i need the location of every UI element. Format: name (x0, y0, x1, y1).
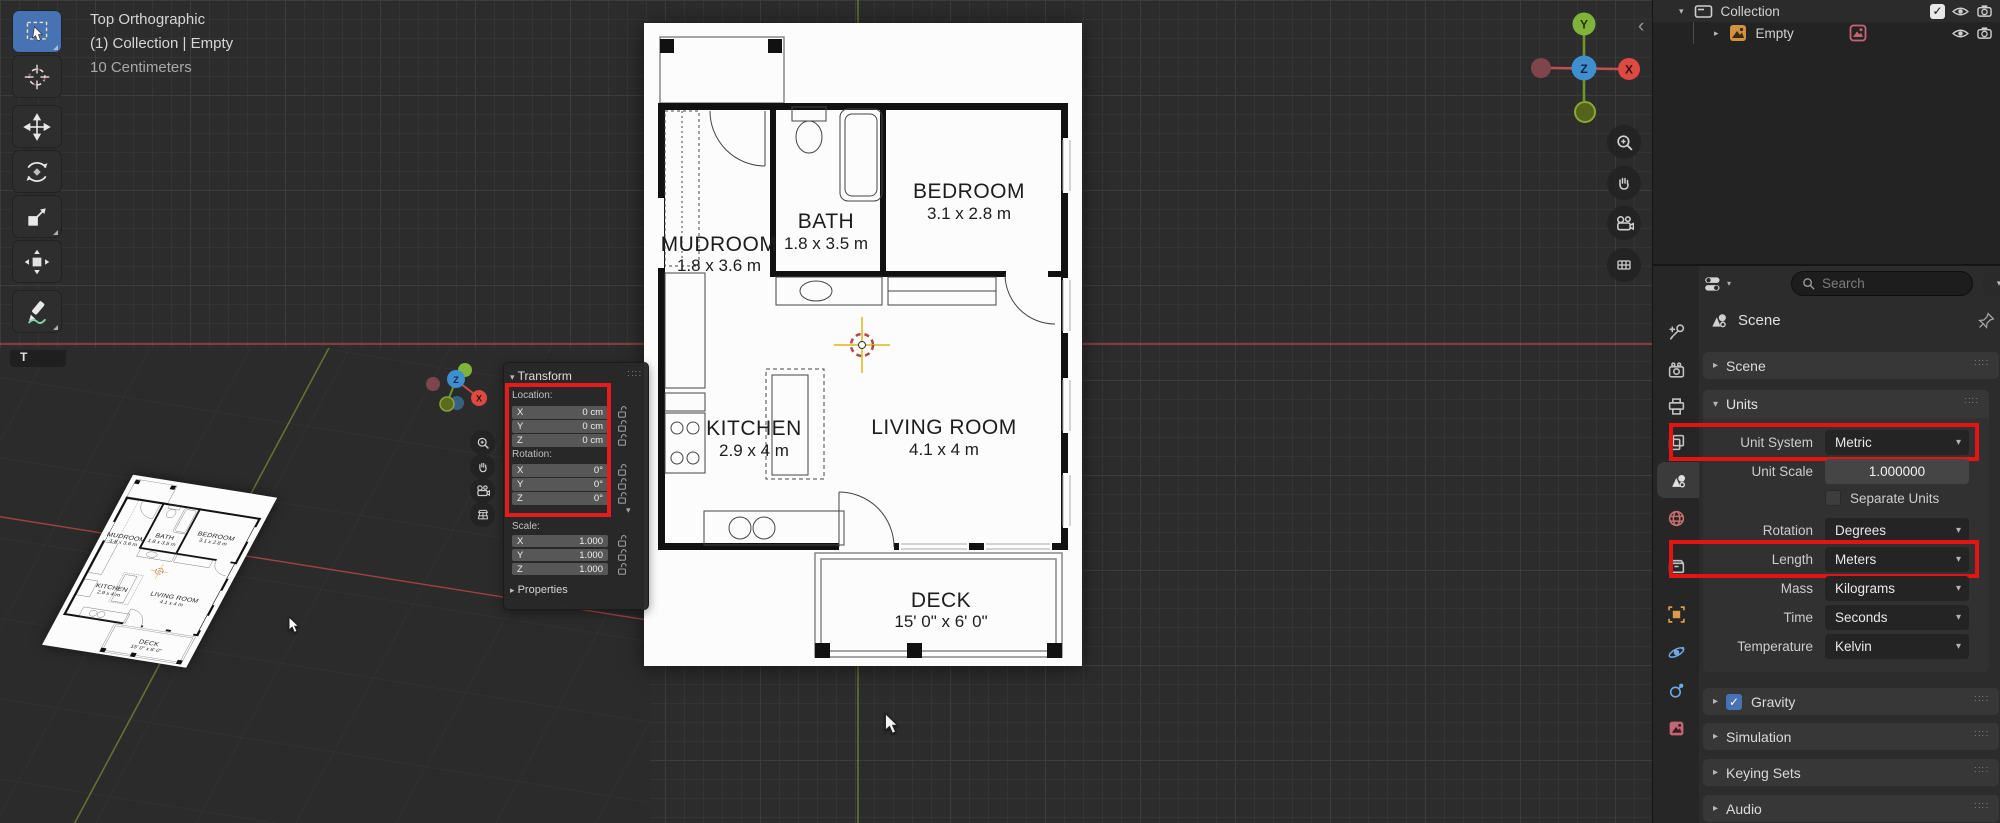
rotation-unit-row: Rotation Degrees▾ (1703, 517, 1983, 543)
panel-drag-dots[interactable]: ∷∷ (1964, 396, 1979, 407)
camera-view-button[interactable] (1607, 206, 1641, 240)
scale-label: Scale: (512, 521, 540, 532)
transform-panel: ▾ Transform ∷∷ Location: X0 cm Y0 cm Z0 … (503, 362, 649, 610)
viewport-3d[interactable]: MUDROOM 1.8 x 3.6 m BATH 1.8 x 3.5 m BED… (0, 0, 1652, 823)
cursor-tool[interactable] (12, 55, 62, 98)
location-label: Location: (512, 390, 553, 401)
panel-keying-sets[interactable]: ▸ Keying Sets ∷∷ (1703, 759, 1999, 786)
floorplan-image-empty[interactable]: MUDROOM 1.8 x 3.6 m BATH 1.8 x 3.5 m BED… (644, 23, 1082, 666)
svg-text:1.8 x 3.5 m: 1.8 x 3.5 m (784, 234, 868, 253)
svg-text:Z: Z (453, 375, 459, 385)
mass-unit-row: Mass Kilograms▾ (1703, 575, 1983, 601)
length-unit-dropdown[interactable]: Meters▾ (1825, 547, 1969, 572)
lock-icon[interactable] (616, 434, 628, 446)
view-name-text: Top Orthographic (90, 8, 233, 32)
scene-icon (1709, 310, 1729, 330)
tab-render[interactable] (1653, 352, 1699, 388)
lock-icon[interactable] (616, 478, 628, 490)
outliner-row-collection[interactable]: ▾ Collection ✓ (1653, 0, 2000, 22)
tab-physics[interactable] (1653, 634, 1699, 670)
svg-text:Y: Y (1580, 18, 1588, 32)
inset-gizmo-neg-x-axis (426, 377, 440, 391)
tab-scene[interactable] (1657, 462, 1699, 498)
3d-cursor (834, 317, 890, 373)
svg-text:4.1 x 4 m: 4.1 x 4 m (909, 440, 979, 459)
inset-pan-button[interactable] (470, 454, 495, 479)
lock-icon[interactable] (616, 492, 628, 504)
sidebar-collapse-chevron[interactable]: ‹ (1638, 16, 1644, 38)
svg-text:3.1 x 2.8 m: 3.1 x 2.8 m (927, 204, 1011, 223)
tab-object-data[interactable] (1653, 710, 1699, 746)
properties-search[interactable]: Search (1791, 271, 1973, 296)
svg-text:1.8 x 3.6 m: 1.8 x 3.6 m (677, 256, 761, 275)
time-unit-dropdown[interactable]: Seconds▾ (1825, 605, 1969, 630)
room-label: BEDROOM (913, 180, 1025, 203)
unit-scale-field[interactable]: 1.000000 (1825, 459, 1969, 484)
mass-unit-dropdown[interactable]: Kilograms▾ (1825, 576, 1969, 601)
breadcrumb-scene[interactable]: Scene (1738, 312, 1781, 329)
properties-content: ▾ Search ▾ Scene ▸ Scene ∷∷ (1699, 266, 2000, 823)
active-object-text: (1) Collection | Empty (90, 32, 233, 56)
room-label: DECK (911, 589, 971, 612)
svg-text:2.9 x 4 m: 2.9 x 4 m (719, 441, 789, 460)
inset-viewport-tab[interactable]: T (10, 350, 66, 367)
scale-x-field[interactable]: X1.000 (512, 535, 608, 547)
move-tool[interactable] (12, 105, 62, 148)
svg-text:Z: Z (1580, 62, 1587, 76)
svg-text:X: X (1625, 63, 1633, 77)
editor-type-button[interactable]: ▾ (1703, 271, 1743, 296)
panel-drag-dots[interactable]: ∷∷ (1974, 694, 1989, 705)
rotation-unit-dropdown[interactable]: Degrees▾ (1825, 518, 1969, 543)
scale-y-field[interactable]: Y1.000 (512, 549, 608, 561)
camera-restrict-icon[interactable] (1976, 4, 1993, 18)
rotation-mode-dropdown[interactable]: ▾ (626, 505, 631, 516)
blender-window: MUDROOM 1.8 x 3.6 m BATH 1.8 x 3.5 m BED… (0, 0, 2000, 823)
lock-icon[interactable] (616, 535, 628, 547)
properties-editor: ▾ Search ▾ Scene ▸ Scene ∷∷ (1653, 266, 2000, 823)
filter-dropdown-button[interactable]: ▾ (1983, 271, 2000, 296)
unit-system-dropdown[interactable]: Metric▾ (1825, 430, 1969, 455)
properties-tab-strip (1653, 266, 1699, 823)
lock-icon[interactable] (616, 464, 628, 476)
lock-icon[interactable] (616, 563, 628, 575)
rotation-z-field[interactable]: Z0° (512, 492, 608, 505)
rotation-x-field[interactable]: X0° (512, 464, 608, 477)
room-label: MUDROOM (661, 233, 778, 256)
search-placeholder: Search (1822, 276, 1865, 291)
lock-icon[interactable] (616, 420, 628, 432)
location-x-field[interactable]: X0 cm (512, 406, 608, 419)
lock-icon[interactable] (616, 549, 628, 561)
collection-icon (1694, 3, 1713, 19)
separate-units-checkbox[interactable] (1825, 490, 1841, 506)
inset-gizmo-neg-y-axis (440, 397, 454, 411)
grid-scale-text: 10 Centimeters (90, 56, 233, 80)
properties-subpanel[interactable]: ▸ Properties (510, 584, 568, 596)
gizmo-neg-x-axis (1531, 58, 1551, 78)
rotation-y-field[interactable]: Y0° (512, 478, 608, 491)
gravity-checkbox[interactable]: ✓ (1726, 694, 1742, 710)
temperature-unit-dropdown[interactable]: Kelvin▾ (1825, 634, 1969, 659)
pan-button[interactable] (1607, 166, 1641, 200)
panel-scene[interactable]: ▸ Scene ∷∷ (1703, 352, 1999, 379)
gizmo-neg-y-axis (1575, 102, 1595, 122)
transform-tool[interactable] (12, 240, 62, 283)
panel-simulation[interactable]: ▸ Simulation ∷∷ (1703, 723, 1999, 750)
outliner-item-label[interactable]: Collection (1721, 4, 1780, 19)
mouse-cursor (884, 712, 901, 737)
transform-panel-header[interactable]: ▾ Transform (510, 369, 572, 383)
outliner-item-label[interactable]: Empty (1756, 26, 1794, 41)
image-data-icon (1848, 23, 1868, 43)
camera-restrict-icon[interactable] (1976, 26, 1993, 40)
temperature-unit-row: Temperature Kelvin▾ (1703, 633, 1983, 659)
svg-text:15' 0" x 6' 0": 15' 0" x 6' 0" (894, 612, 987, 631)
zoom-button[interactable] (1607, 125, 1641, 159)
inset-nav-gizmo[interactable]: Z X (420, 356, 510, 422)
eye-icon[interactable] (1952, 27, 1969, 40)
lock-icon[interactable] (616, 406, 628, 418)
search-icon (1802, 277, 1815, 290)
panel-drag-dots[interactable]: ∷∷ (1974, 801, 1989, 812)
panel-units: ▾ Units ∷∷ Unit System Metric▾ Unit Scal… (1699, 390, 1995, 680)
tab-output[interactable] (1653, 388, 1699, 424)
eye-icon[interactable] (1952, 5, 1969, 18)
tab-object[interactable] (1653, 596, 1699, 632)
tab-view-layer[interactable] (1653, 424, 1699, 460)
panel-audio[interactable]: ▸ Audio ∷∷ (1703, 795, 1999, 822)
svg-text:X: X (476, 394, 482, 404)
panel-drag-dots[interactable]: ∷∷ (1974, 765, 1989, 776)
viewport-header: Top Orthographic (1) Collection | Empty … (90, 8, 233, 80)
unit-system-row: Unit System Metric▾ (1703, 429, 1983, 455)
select-box-tool[interactable] (12, 10, 62, 53)
inset-grid-button[interactable] (470, 502, 495, 527)
tab-tool[interactable] (1653, 314, 1699, 350)
inset-camera-button[interactable] (470, 478, 495, 503)
tree-line (1693, 22, 1694, 44)
room-label: BATH (798, 210, 854, 233)
tab-world[interactable] (1653, 500, 1699, 536)
measure-tool-icon: T (20, 350, 27, 364)
inset-mouse-cursor (288, 616, 301, 635)
right-panel: ▾ Collection ✓ ▸ Empty (1652, 0, 2000, 823)
pin-icon[interactable] (1978, 312, 1995, 329)
empty-image-object-icon (1728, 23, 1748, 43)
panel-drag-dots[interactable]: ∷∷ (1974, 358, 1989, 369)
outliner-row-empty[interactable]: ▸ Empty (1653, 22, 2000, 44)
room-label: LIVING ROOM (871, 416, 1017, 439)
outliner: ▾ Collection ✓ ▸ Empty (1653, 0, 2000, 264)
units-panel-header[interactable]: ▾ Units ∷∷ (1703, 390, 1989, 418)
inset-zoom-button[interactable] (470, 430, 495, 455)
expand-chevron-icon[interactable]: ▾ (1679, 6, 1684, 17)
length-unit-row: Length Meters▾ (1703, 546, 1983, 572)
time-unit-row: Time Seconds▾ (1703, 604, 1983, 630)
breadcrumb: Scene (1709, 310, 1995, 330)
panel-drag-dots[interactable]: ∷∷ (1974, 729, 1989, 740)
ortho-grid-button[interactable] (1607, 248, 1641, 282)
rotation-label: Rotation: (512, 449, 552, 460)
location-y-field[interactable]: Y0 cm (512, 420, 608, 433)
scale-tool[interactable] (12, 195, 62, 238)
separate-units-row: Separate Units (1703, 487, 1983, 509)
expand-chevron-icon[interactable]: ▸ (1714, 28, 1719, 39)
toolbar (12, 10, 62, 335)
room-label: KITCHEN (706, 417, 802, 440)
panel-gravity[interactable]: ▸ ✓ Gravity ∷∷ (1703, 688, 1999, 715)
location-z-field[interactable]: Z0 cm (512, 434, 608, 447)
nav-gizmo[interactable]: Y Z X (1524, 2, 1648, 128)
tab-collection[interactable] (1653, 548, 1699, 584)
annotate-tool[interactable] (12, 290, 62, 333)
scale-z-field[interactable]: Z1.000 (512, 563, 608, 575)
unit-scale-row: Unit Scale 1.000000 (1703, 458, 1983, 484)
exclude-checkbox[interactable]: ✓ (1930, 4, 1945, 19)
tab-constraints[interactable] (1653, 672, 1699, 708)
panel-drag-dots[interactable]: ∷∷ (627, 369, 642, 380)
rotate-tool[interactable] (12, 150, 62, 193)
inset-floorplan-image[interactable]: MUDROOM 1.8 x 3.6 m BATH 1.8 x 3.5 m BED… (42, 475, 277, 668)
